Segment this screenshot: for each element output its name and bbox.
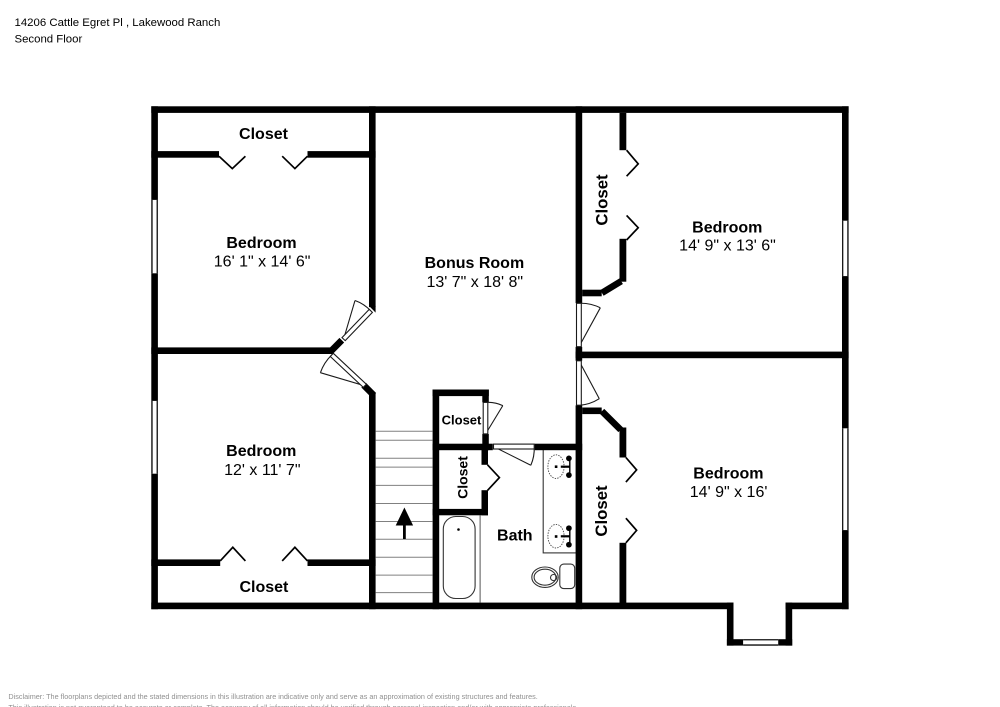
svg-text:Closet: Closet: [592, 174, 611, 226]
svg-text:12' x 11' 7": 12' x 11' 7": [224, 462, 300, 479]
svg-text:Closet: Closet: [239, 579, 289, 596]
svg-text:Closet: Closet: [455, 456, 471, 499]
svg-text:Bath: Bath: [497, 528, 533, 545]
svg-text:Second Floor: Second Floor: [15, 34, 83, 46]
svg-text:Bedroom: Bedroom: [692, 219, 762, 236]
svg-text:14' 9" x 13' 6": 14' 9" x 13' 6": [679, 237, 776, 254]
svg-text:Bedroom: Bedroom: [693, 465, 763, 482]
svg-text:14206 Cattle Egret Pl , Lakewo: 14206 Cattle Egret Pl , Lakewood Ranch: [15, 17, 221, 29]
svg-text:Closet: Closet: [239, 126, 289, 143]
svg-text:Bedroom: Bedroom: [226, 235, 296, 252]
svg-text:Disclaimer: The floorplans dep: Disclaimer: The floorplans depicted and …: [8, 692, 537, 701]
svg-text:Bedroom: Bedroom: [226, 443, 296, 460]
svg-text:13' 7" x 18' 8": 13' 7" x 18' 8": [426, 274, 523, 291]
svg-text:This illustration is not guara: This illustration is not guaranteed to b…: [8, 703, 578, 707]
svg-text:14' 9" x 16': 14' 9" x 16': [690, 484, 768, 501]
svg-text:16' 1" x 14' 6": 16' 1" x 14' 6": [214, 253, 311, 270]
svg-text:Closet: Closet: [442, 412, 482, 427]
svg-text:Closet: Closet: [592, 485, 611, 537]
svg-text:Bonus Room: Bonus Room: [425, 255, 525, 272]
